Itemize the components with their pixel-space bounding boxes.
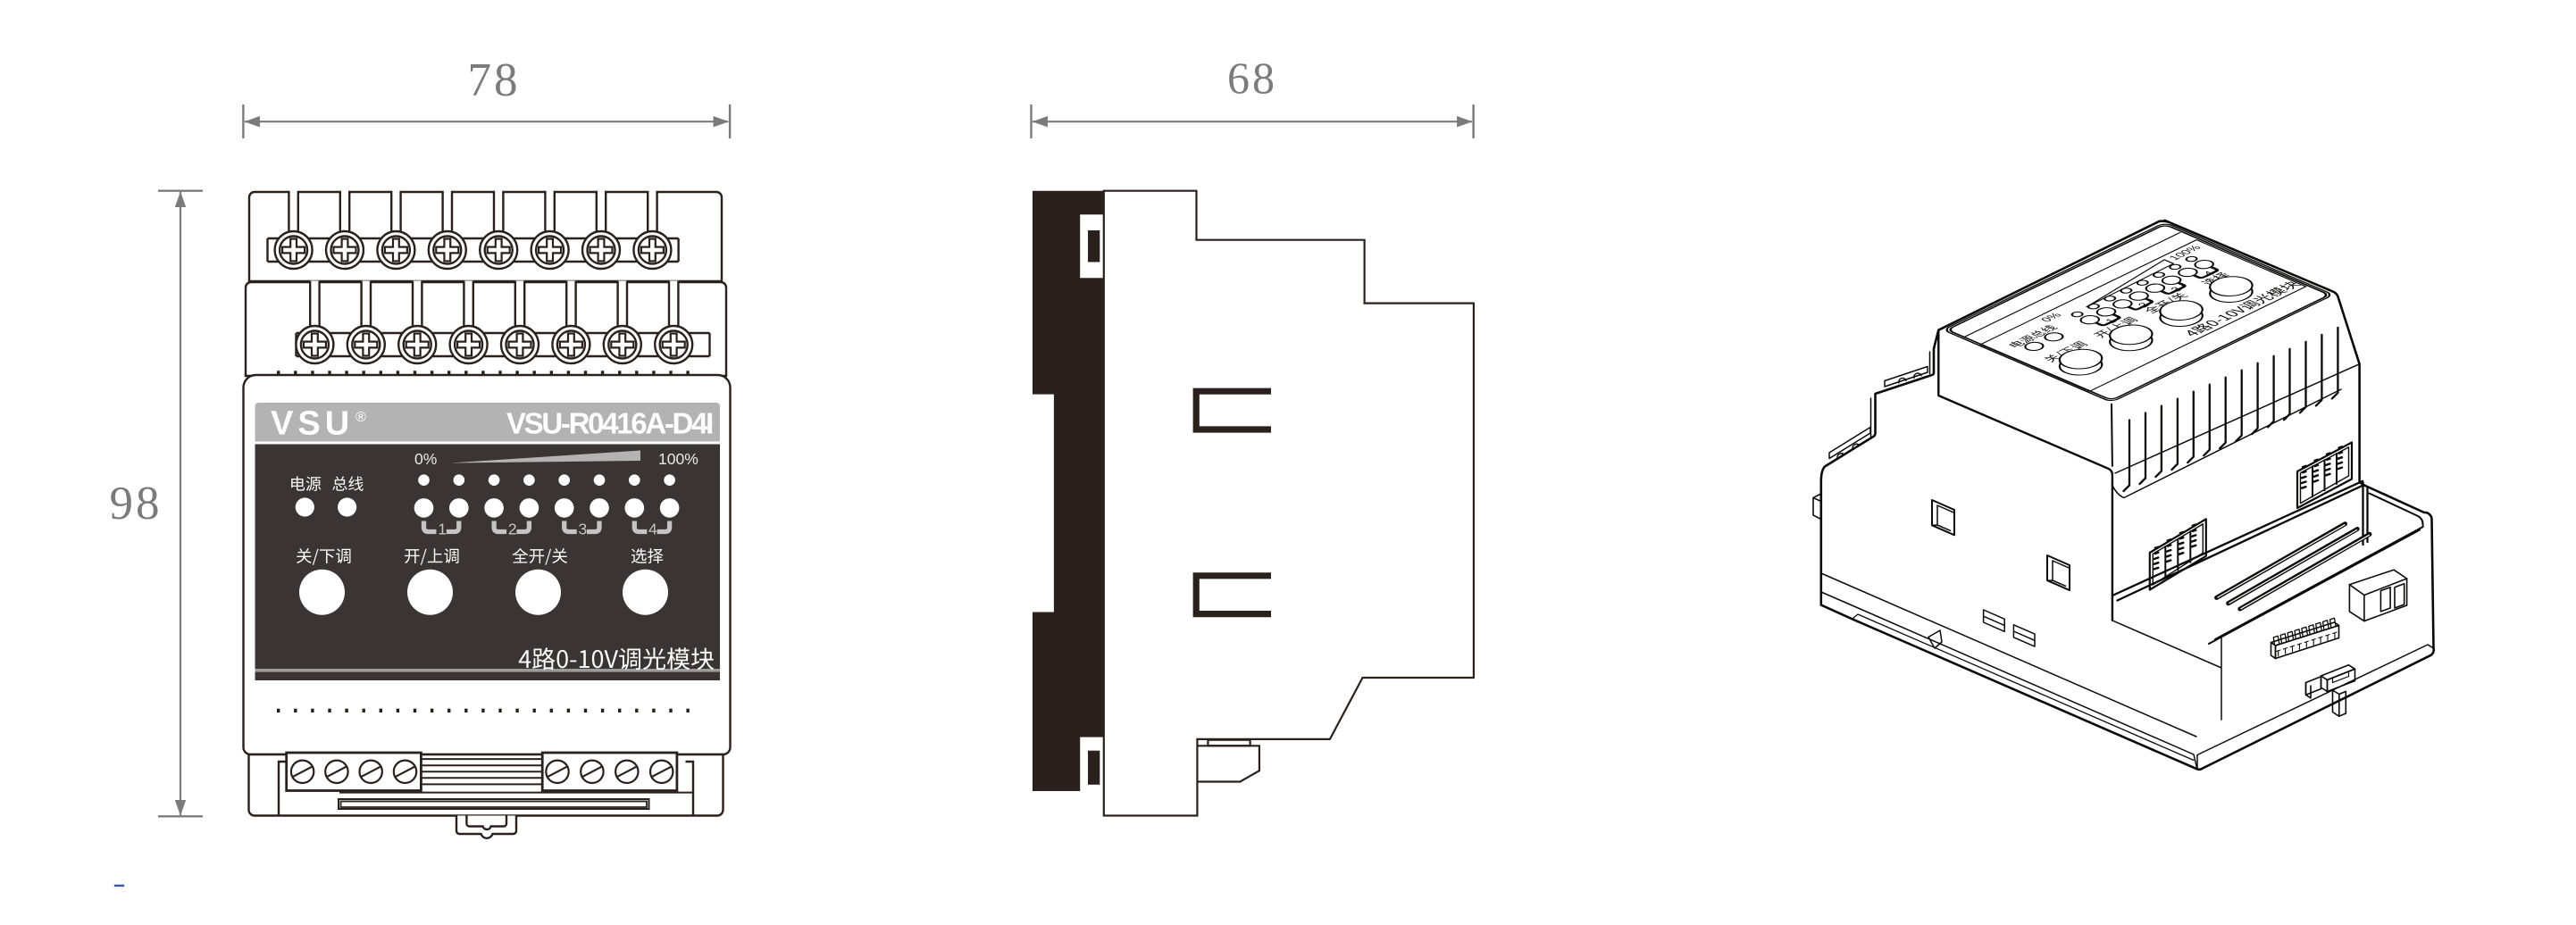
svg-text:3: 3 bbox=[579, 521, 588, 538]
svg-text:78: 78 bbox=[468, 54, 521, 106]
svg-text:98: 98 bbox=[110, 478, 163, 529]
svg-text:0%: 0% bbox=[414, 450, 437, 468]
svg-text:®: ® bbox=[355, 410, 366, 425]
svg-text:68: 68 bbox=[1227, 53, 1277, 103]
svg-text:4: 4 bbox=[648, 521, 657, 538]
svg-text:VSU: VSU bbox=[271, 405, 354, 443]
svg-text:2: 2 bbox=[508, 521, 517, 538]
svg-text:VSU-R0416A-D4I: VSU-R0416A-D4I bbox=[506, 407, 712, 440]
svg-text:1: 1 bbox=[438, 521, 447, 538]
svg-text:100%: 100% bbox=[658, 450, 698, 468]
